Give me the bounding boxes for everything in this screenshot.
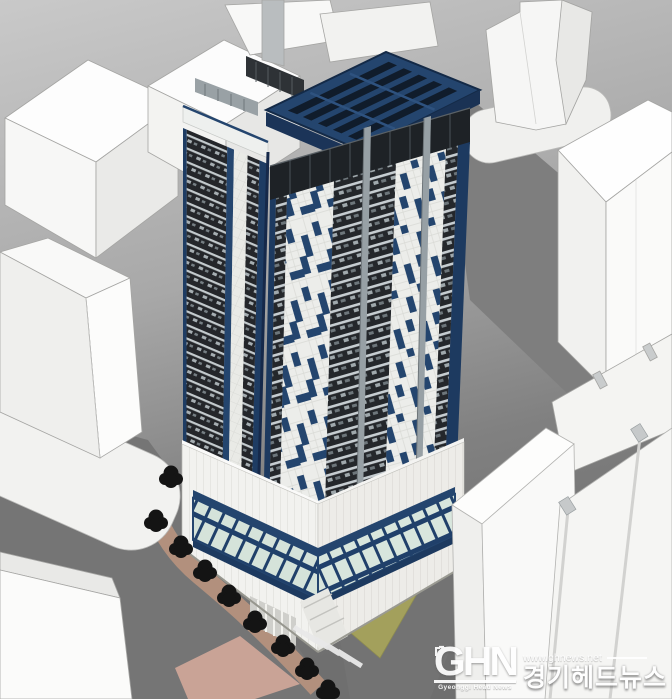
watermark-site: www.ghnews.net 경기헤드뉴스 xyxy=(523,652,667,691)
url-dash-line xyxy=(607,657,647,659)
watermark: GHN Gyeonggi Head News www.ghnews.net 경기… xyxy=(434,646,667,691)
site-url-row: www.ghnews.net xyxy=(523,652,647,664)
logo-underline xyxy=(434,680,516,683)
logo-subtext: Gyeonggi Head News xyxy=(438,684,512,691)
arrow-up-right-icon xyxy=(435,644,448,657)
site-name-korean: 경기헤드뉴스 xyxy=(523,666,667,691)
watermark-logo: GHN Gyeonggi Head News xyxy=(434,646,516,691)
architectural-rendering: GHN Gyeonggi Head News www.ghnews.net 경기… xyxy=(0,0,672,699)
render-canvas xyxy=(0,0,672,699)
site-url: www.ghnews.net xyxy=(523,652,602,664)
rooftop-pillar xyxy=(262,0,284,66)
